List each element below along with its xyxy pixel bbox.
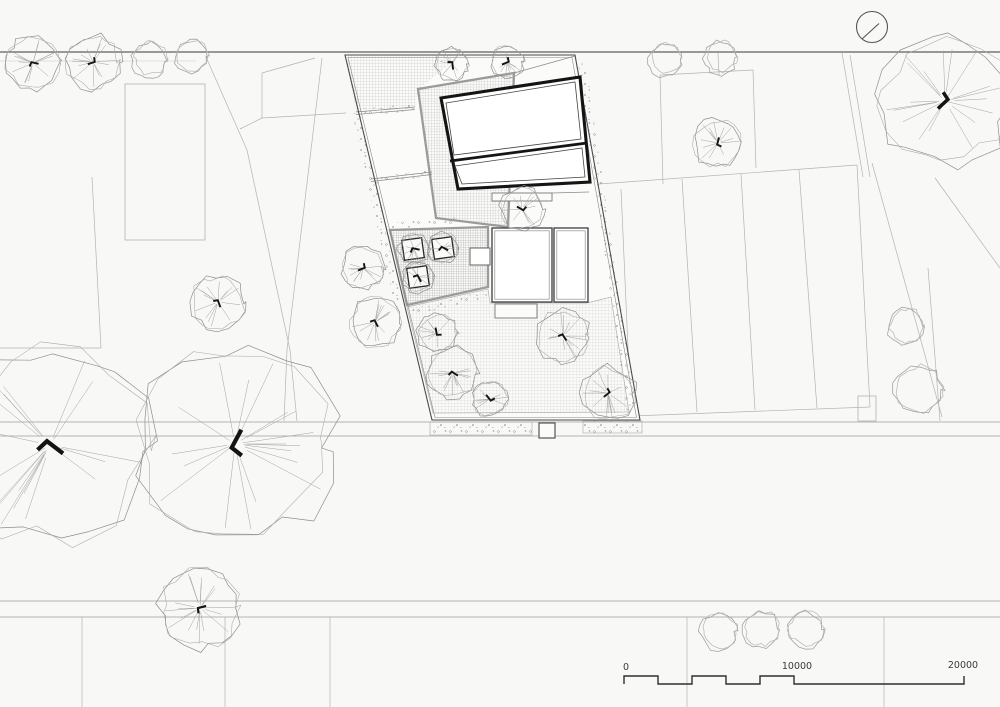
scale-label-10000: 10000: [782, 661, 812, 672]
planting-bed: [430, 422, 532, 435]
entrance-step: [495, 304, 537, 318]
scale-label-20000: 20000: [948, 660, 978, 671]
main-building: [441, 77, 590, 189]
scale-label-0: 0: [623, 662, 629, 673]
annex-building: [492, 228, 552, 302]
gate-square: [539, 423, 555, 438]
planting-bed: [583, 421, 642, 433]
site-plan-page: 0 10000 20000: [0, 0, 1000, 707]
annex-building: [554, 228, 588, 302]
garden-store: [470, 248, 490, 265]
site-plan-canvas: 0 10000 20000: [0, 0, 1000, 707]
